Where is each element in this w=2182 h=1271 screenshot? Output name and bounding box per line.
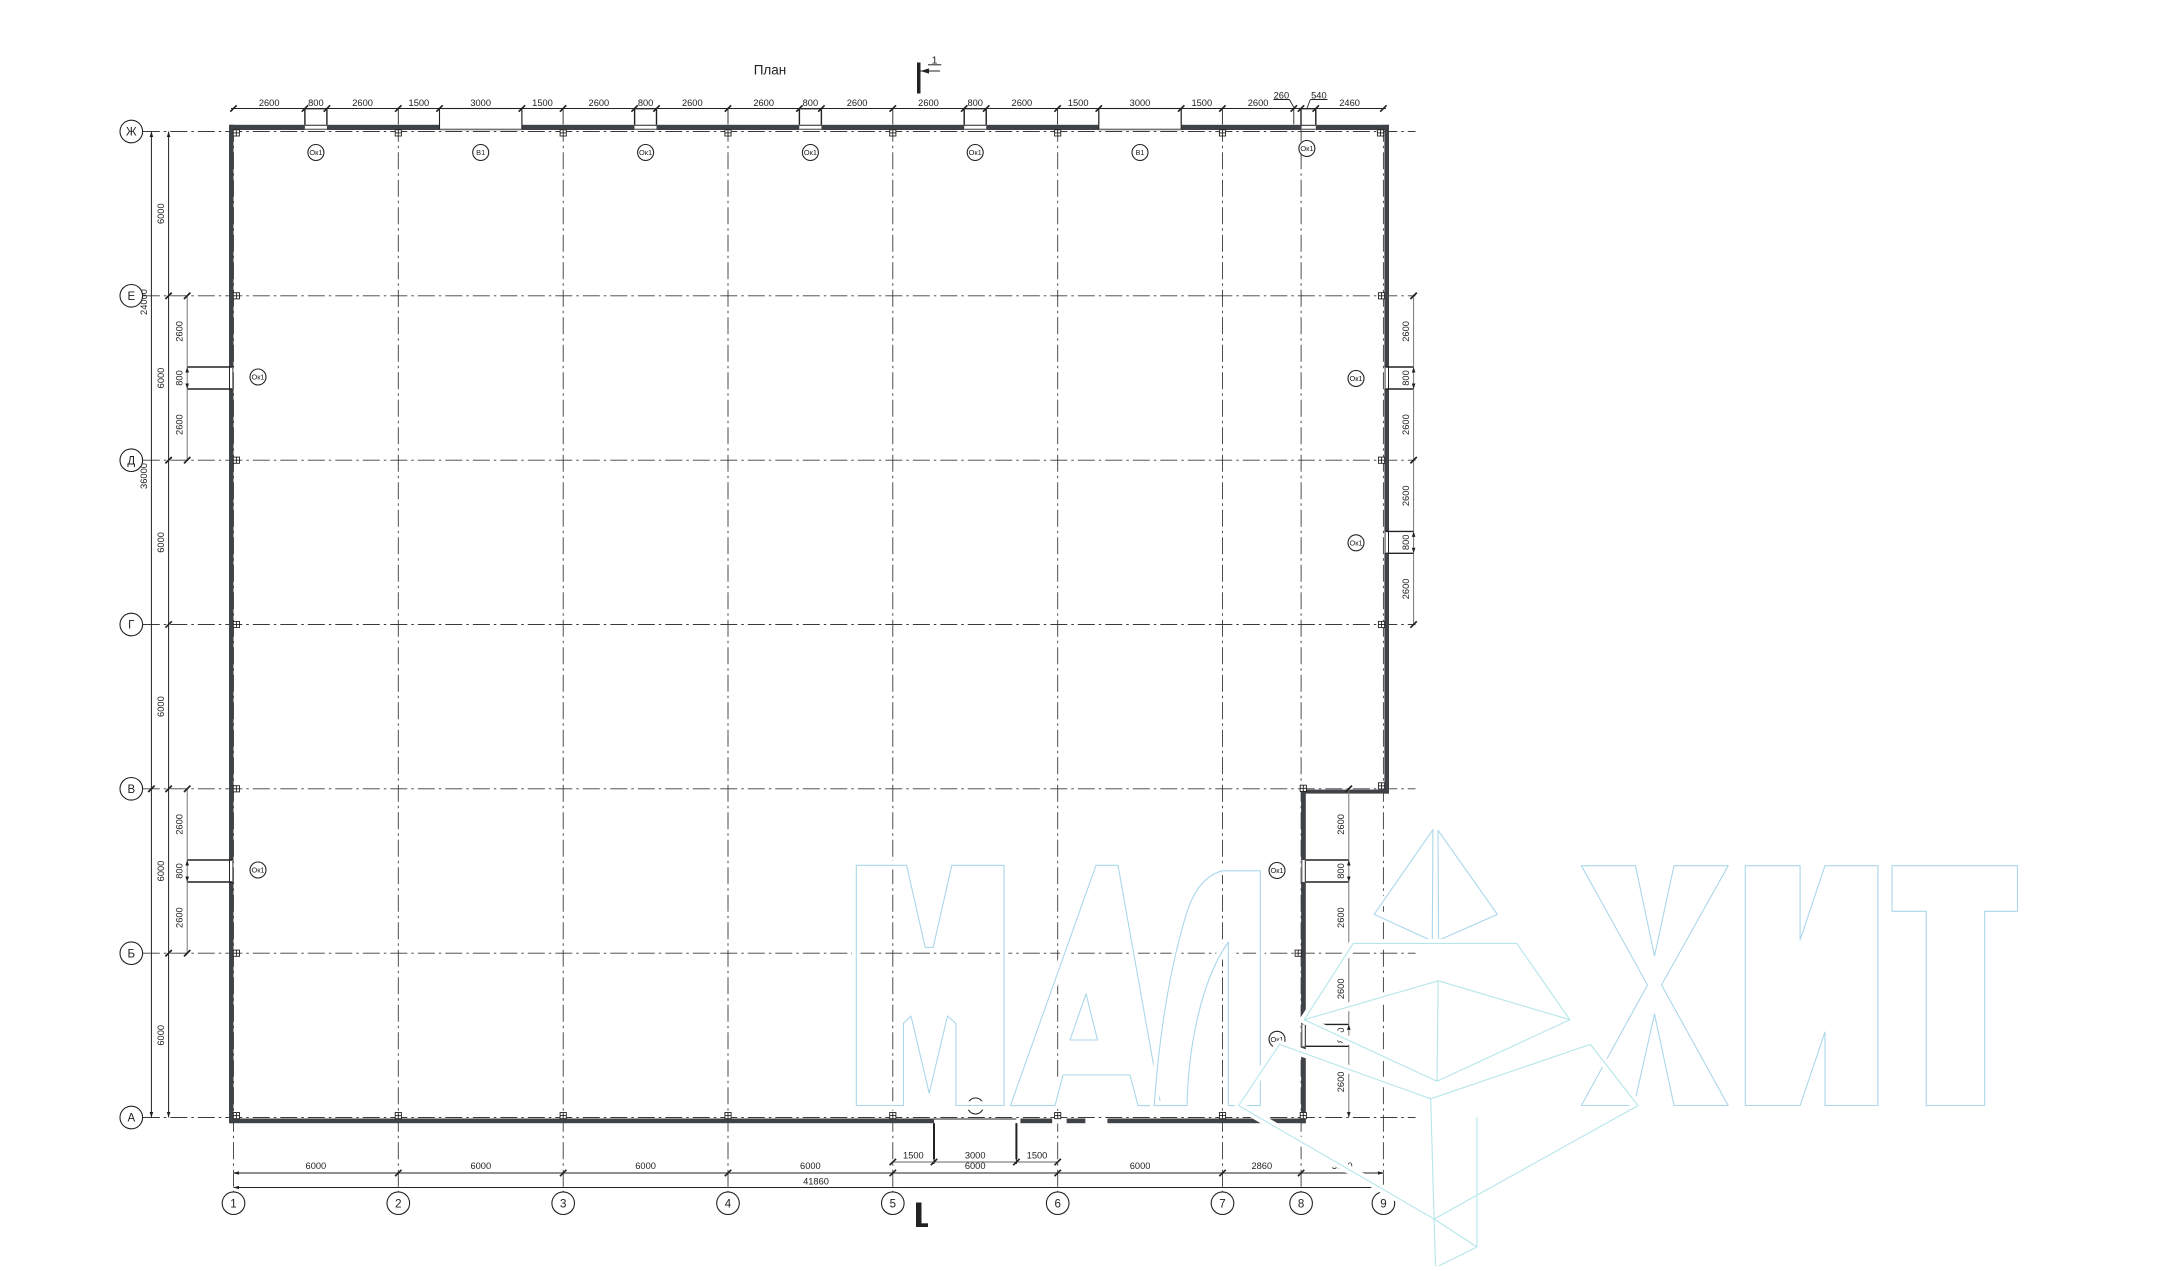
svg-text:5: 5 bbox=[890, 1198, 896, 1210]
svg-text:План: План bbox=[754, 63, 787, 78]
svg-text:Ок1: Ок1 bbox=[804, 148, 817, 157]
svg-text:3: 3 bbox=[560, 1198, 566, 1210]
svg-text:2600: 2600 bbox=[175, 321, 185, 342]
svg-text:260: 260 bbox=[1274, 90, 1290, 100]
svg-text:6000: 6000 bbox=[156, 1025, 166, 1046]
svg-text:800: 800 bbox=[638, 98, 654, 108]
svg-text:А: А bbox=[127, 1113, 135, 1125]
svg-text:1500: 1500 bbox=[903, 1151, 924, 1161]
svg-text:540: 540 bbox=[1311, 90, 1327, 100]
svg-text:800: 800 bbox=[175, 370, 185, 386]
svg-text:Е: Е bbox=[127, 291, 135, 303]
svg-text:2600: 2600 bbox=[1401, 485, 1411, 506]
svg-text:2600: 2600 bbox=[352, 98, 373, 108]
svg-text:3000: 3000 bbox=[470, 98, 491, 108]
svg-text:6000: 6000 bbox=[306, 1161, 327, 1171]
svg-text:2600: 2600 bbox=[175, 814, 185, 835]
svg-text:Ок1: Ок1 bbox=[251, 866, 264, 875]
svg-text:2600: 2600 bbox=[1336, 814, 1346, 835]
svg-text:800: 800 bbox=[1336, 863, 1346, 879]
svg-text:6000: 6000 bbox=[965, 1161, 986, 1171]
svg-text:2600: 2600 bbox=[753, 98, 774, 108]
svg-text:Д: Д bbox=[127, 455, 135, 467]
svg-text:8: 8 bbox=[1298, 1198, 1304, 1210]
svg-text:6000: 6000 bbox=[470, 1161, 491, 1171]
svg-text:Ок1: Ок1 bbox=[639, 148, 652, 157]
svg-text:6000: 6000 bbox=[156, 532, 166, 553]
svg-text:Ок1: Ок1 bbox=[1349, 374, 1362, 383]
svg-text:2600: 2600 bbox=[1401, 321, 1411, 342]
svg-text:6000: 6000 bbox=[635, 1161, 656, 1171]
svg-text:Ок1: Ок1 bbox=[1300, 144, 1313, 153]
svg-text:800: 800 bbox=[175, 863, 185, 879]
svg-text:3000: 3000 bbox=[1130, 98, 1151, 108]
svg-text:2600: 2600 bbox=[259, 98, 280, 108]
svg-text:800: 800 bbox=[803, 98, 819, 108]
svg-text:Г: Г bbox=[128, 620, 135, 632]
svg-text:1500: 1500 bbox=[1068, 98, 1089, 108]
svg-text:2600: 2600 bbox=[1336, 1072, 1346, 1093]
svg-text:41860: 41860 bbox=[803, 1176, 829, 1186]
svg-text:2600: 2600 bbox=[589, 98, 610, 108]
svg-text:9: 9 bbox=[1380, 1198, 1386, 1210]
svg-text:6000: 6000 bbox=[1130, 1161, 1151, 1171]
svg-text:6000: 6000 bbox=[156, 203, 166, 224]
svg-text:3000: 3000 bbox=[965, 1151, 986, 1161]
svg-text:1500: 1500 bbox=[1027, 1151, 1048, 1161]
svg-text:Ок1: Ок1 bbox=[1349, 539, 1362, 548]
svg-text:В1: В1 bbox=[476, 148, 485, 157]
svg-text:6: 6 bbox=[1054, 1198, 1060, 1210]
svg-text:2600: 2600 bbox=[1248, 98, 1269, 108]
svg-text:2600: 2600 bbox=[175, 414, 185, 435]
svg-text:В: В bbox=[127, 784, 135, 796]
svg-text:2600: 2600 bbox=[847, 98, 868, 108]
svg-text:2: 2 bbox=[395, 1198, 401, 1210]
svg-text:2600: 2600 bbox=[1336, 907, 1346, 928]
svg-text:2600: 2600 bbox=[1012, 98, 1033, 108]
svg-text:800: 800 bbox=[1401, 370, 1411, 386]
svg-text:Ок1: Ок1 bbox=[1270, 866, 1283, 875]
svg-text:2600: 2600 bbox=[175, 907, 185, 928]
svg-text:6000: 6000 bbox=[156, 696, 166, 717]
svg-text:1500: 1500 bbox=[532, 98, 553, 108]
svg-text:Ж: Ж bbox=[126, 127, 137, 139]
svg-text:2600: 2600 bbox=[682, 98, 703, 108]
svg-text:800: 800 bbox=[967, 98, 983, 108]
svg-text:Б: Б bbox=[128, 948, 136, 960]
svg-text:2460: 2460 bbox=[1339, 98, 1360, 108]
svg-text:800: 800 bbox=[308, 98, 324, 108]
svg-text:800: 800 bbox=[1401, 535, 1411, 551]
svg-text:6000: 6000 bbox=[800, 1161, 821, 1171]
svg-text:2600: 2600 bbox=[918, 98, 939, 108]
svg-text:1500: 1500 bbox=[1191, 98, 1212, 108]
svg-text:4: 4 bbox=[725, 1198, 732, 1210]
svg-text:Ок1: Ок1 bbox=[251, 373, 264, 382]
svg-text:7: 7 bbox=[1219, 1198, 1225, 1210]
svg-text:2600: 2600 bbox=[1401, 579, 1411, 600]
svg-text:6000: 6000 bbox=[156, 861, 166, 882]
svg-text:1500: 1500 bbox=[409, 98, 430, 108]
svg-text:6000: 6000 bbox=[156, 368, 166, 389]
svg-text:2600: 2600 bbox=[1336, 978, 1346, 999]
svg-text:Ок1: Ок1 bbox=[969, 148, 982, 157]
svg-text:1: 1 bbox=[230, 1198, 236, 1210]
svg-text:2600: 2600 bbox=[1401, 414, 1411, 435]
svg-text:2860: 2860 bbox=[1251, 1161, 1272, 1171]
svg-text:В1: В1 bbox=[1135, 148, 1144, 157]
svg-text:Ок1: Ок1 bbox=[309, 148, 322, 157]
